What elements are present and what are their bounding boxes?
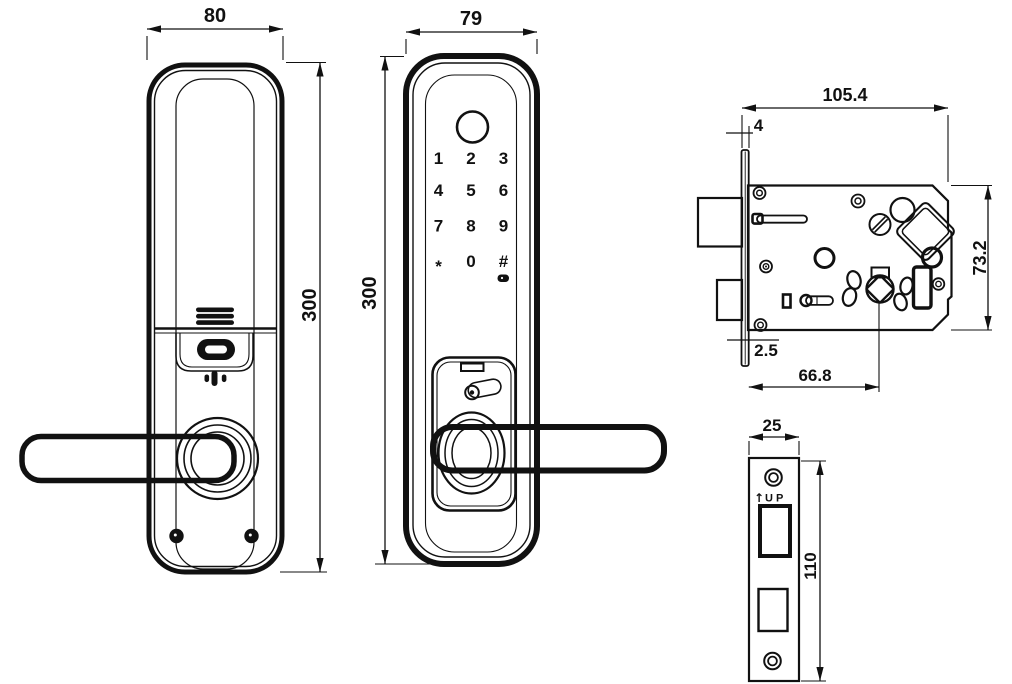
key-2[interactable]: 2 xyxy=(466,149,475,168)
spring-left xyxy=(841,270,863,308)
up-arrow-icon: ↑ xyxy=(754,491,764,505)
dim-strike-height: 110 xyxy=(801,461,826,681)
stop-block xyxy=(783,295,791,308)
thumbturn-hole xyxy=(923,248,942,267)
dim-label-back-height: 300 xyxy=(299,288,321,321)
mortise-lock-body: 105.4 4 73.2 2.5 66.8 xyxy=(698,85,992,392)
dim-label-front-height: 300 xyxy=(359,276,381,309)
dead-bolt xyxy=(717,280,742,320)
adjust-slot xyxy=(753,214,808,224)
technical-drawing: 80 300 1 2 3 4 5 6 7 8 9 * 0 # xyxy=(0,0,1012,684)
case-screw xyxy=(754,187,766,199)
fingerprint-sensor[interactable] xyxy=(457,112,488,143)
center-hole xyxy=(815,249,834,268)
strike-plate: ↑ UP 25 110 xyxy=(749,416,826,681)
dim-front-width: 79 xyxy=(406,8,537,54)
module-slot xyxy=(461,364,484,372)
dim-label-mortise-height: 73.2 xyxy=(970,240,990,275)
dim-mortise-height: 73.2 xyxy=(951,186,992,331)
key-star[interactable]: * xyxy=(435,257,442,276)
up-label: UP xyxy=(765,493,786,505)
door-handle[interactable] xyxy=(22,437,234,481)
dim-back-height: 300 xyxy=(280,63,327,573)
handle-rosette xyxy=(177,418,258,499)
mounting-screw xyxy=(244,529,258,543)
case-screw xyxy=(933,278,945,290)
dim-strike-width: 25 xyxy=(749,416,799,455)
latch-bolt xyxy=(698,198,742,247)
latch-opening xyxy=(760,506,790,556)
dim-label-faceplate-thickness: 2.5 xyxy=(754,341,778,360)
key-0[interactable]: 0 xyxy=(466,252,475,271)
keypad[interactable]: 1 2 3 4 5 6 7 8 9 * 0 # xyxy=(434,149,509,276)
dim-label-faceplate-width: 4 xyxy=(754,116,764,135)
key-3[interactable]: 3 xyxy=(499,149,508,168)
lock-back-view: 80 300 xyxy=(22,5,327,572)
strike-screw-hole xyxy=(764,653,781,670)
case-screw xyxy=(852,195,865,208)
emergency-key-cover xyxy=(467,378,502,399)
key-4[interactable]: 4 xyxy=(434,181,444,200)
case-screw xyxy=(760,261,772,273)
dim-label-strike-height: 110 xyxy=(801,552,820,579)
dim-front-height: 300 xyxy=(359,57,440,565)
mounting-screw xyxy=(169,529,183,543)
battery-latch-button[interactable] xyxy=(197,339,235,360)
dim-label-strike-width: 25 xyxy=(763,416,782,435)
dim-label-front-width: 79 xyxy=(460,8,482,30)
strike-screw-hole xyxy=(765,469,782,486)
dim-label-mortise-width: 105.4 xyxy=(822,85,867,105)
lock-front-view: 1 2 3 4 5 6 7 8 9 * 0 # xyxy=(359,8,664,564)
lock-dimension-drawing: 80 300 1 2 3 4 5 6 7 8 9 * 0 # xyxy=(0,0,1012,684)
cylinder-cam-screw xyxy=(870,214,891,235)
speaker-icon xyxy=(205,371,227,387)
dim-back-width: 80 xyxy=(147,5,283,60)
key-1[interactable]: 1 xyxy=(434,149,443,168)
dim-label-backset: 66.8 xyxy=(798,366,831,385)
deadbolt-opening xyxy=(759,589,788,631)
key-hash[interactable]: # xyxy=(499,252,509,271)
key-7[interactable]: 7 xyxy=(434,217,443,236)
key-9[interactable]: 9 xyxy=(499,217,508,236)
doorbell-icon[interactable] xyxy=(498,275,510,283)
key-5[interactable]: 5 xyxy=(466,181,475,200)
speaker-slots xyxy=(196,308,234,325)
door-handle[interactable] xyxy=(433,427,664,471)
key-8[interactable]: 8 xyxy=(466,217,475,236)
key-cylinder-module xyxy=(433,358,516,511)
cylinder-hole xyxy=(891,198,915,222)
spindle-hub xyxy=(866,268,894,303)
lever-slot xyxy=(801,295,834,306)
spring-right xyxy=(892,276,914,311)
follower-slot xyxy=(914,267,932,308)
dim-mortise-width: 105.4 xyxy=(742,85,948,182)
dim-faceplate-width: 4 xyxy=(726,116,764,148)
dim-faceplate-thickness: 2.5 xyxy=(727,340,779,360)
dim-label-back-width: 80 xyxy=(204,5,226,27)
key-6[interactable]: 6 xyxy=(499,181,508,200)
